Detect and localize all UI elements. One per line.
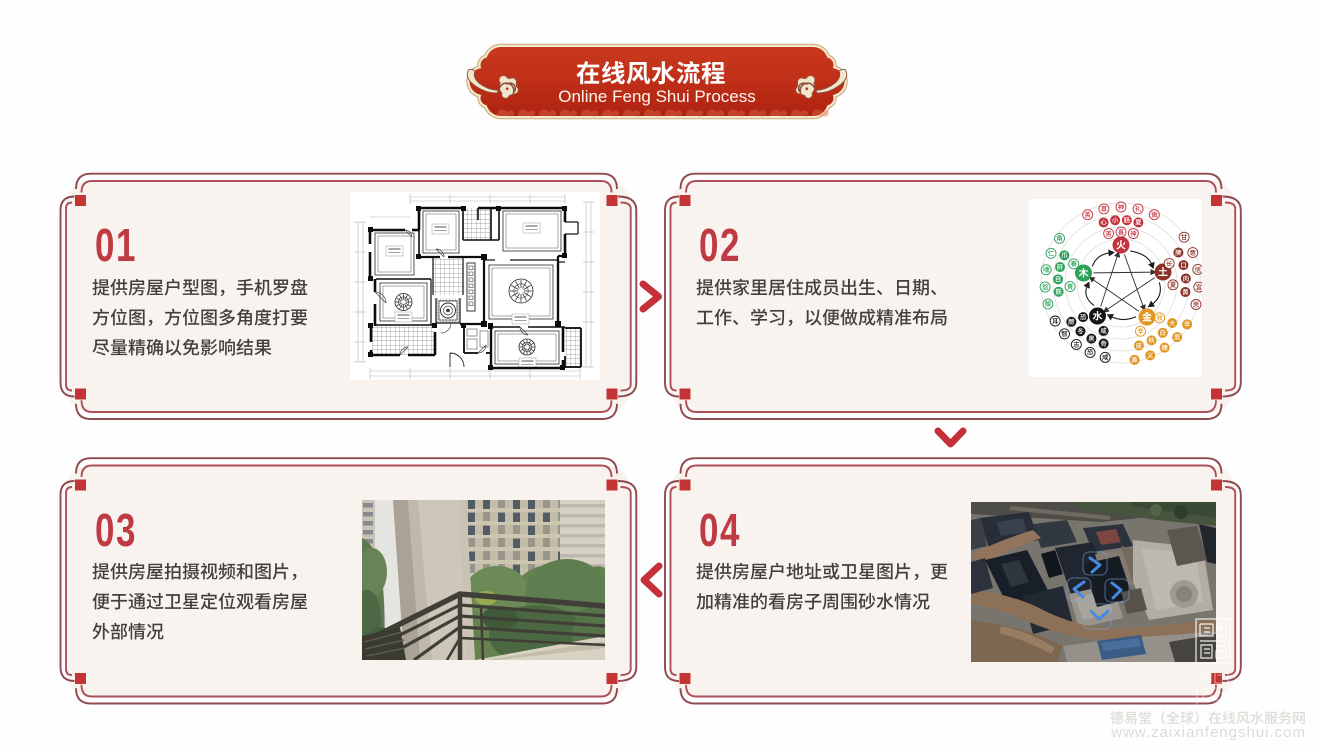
svg-text:膀: 膀 (1068, 316, 1075, 326)
svg-text:苦: 苦 (1084, 209, 1091, 219)
svg-text:筋: 筋 (1055, 286, 1062, 296)
svg-text:脾: 脾 (1175, 247, 1182, 257)
svg-text:志: 志 (1073, 339, 1080, 349)
svg-text:收: 收 (1156, 312, 1163, 322)
svg-text:鼻: 鼻 (1131, 354, 1138, 364)
svg-text:心: 心 (1100, 217, 1107, 227)
svg-text:咸: 咸 (1102, 352, 1109, 362)
svg-text:角: 角 (1056, 233, 1063, 243)
svg-text:小: 小 (1112, 215, 1119, 225)
svg-text:意: 意 (1190, 247, 1197, 257)
svg-text:目: 目 (1055, 274, 1062, 284)
svg-text:智: 智 (1061, 328, 1068, 338)
svg-text:春: 春 (1070, 258, 1077, 268)
svg-text:喜: 喜 (1101, 203, 1108, 213)
svg-text:夏: 夏 (1135, 217, 1142, 227)
svg-text:辛: 辛 (1184, 319, 1191, 329)
svg-text:咸: 咸 (1100, 325, 1107, 335)
svg-text:木: 木 (1079, 265, 1089, 280)
svg-text:怒: 怒 (1042, 281, 1049, 291)
svg-text:喜: 喜 (1118, 226, 1125, 236)
svg-text:苦: 苦 (1105, 228, 1112, 238)
svg-text:青: 青 (1067, 281, 1074, 291)
svg-text:恐: 恐 (1080, 311, 1087, 321)
svg-text:水: 水 (1093, 308, 1103, 323)
svg-text:金: 金 (1142, 309, 1152, 324)
svg-text:酸: 酸 (1045, 298, 1052, 308)
svg-text:夏: 夏 (1170, 279, 1177, 289)
svg-text:大: 大 (1169, 317, 1176, 327)
svg-text:微: 微 (1151, 209, 1158, 219)
svg-text:肝: 肝 (1057, 261, 1064, 271)
svg-text:皮: 皮 (1136, 340, 1143, 350)
svg-text:神: 神 (1130, 228, 1137, 238)
svg-text:神: 神 (1118, 201, 1125, 211)
svg-text:肉: 肉 (1183, 273, 1190, 283)
svg-text:骨: 骨 (1100, 338, 1107, 348)
svg-text:礼: 礼 (1135, 203, 1142, 213)
svg-text:宫: 宫 (1196, 281, 1203, 291)
svg-text:仁: 仁 (1048, 248, 1055, 258)
svg-text:肠: 肠 (1124, 215, 1131, 225)
svg-text:甘: 甘 (1181, 231, 1188, 241)
svg-text:耳: 耳 (1052, 315, 1059, 325)
svg-text:信: 信 (1195, 264, 1202, 274)
svg-text:爪: 爪 (1061, 250, 1068, 260)
svg-text:魄: 魄 (1161, 342, 1168, 352)
svg-text:冬: 冬 (1077, 326, 1084, 336)
svg-text:秋: 秋 (1148, 335, 1155, 345)
svg-text:长: 长 (1166, 258, 1173, 268)
svg-text:辛: 辛 (1137, 326, 1144, 336)
svg-text:悲: 悲 (1174, 331, 1181, 341)
svg-text:白: 白 (1160, 327, 1167, 337)
svg-text:义: 义 (1147, 350, 1154, 360)
svg-text:思: 思 (1193, 299, 1200, 309)
svg-text:火: 火 (1116, 237, 1126, 252)
svg-text:恐: 恐 (1087, 347, 1094, 357)
svg-text:黄: 黄 (1182, 286, 1189, 296)
svg-text:魂: 魂 (1043, 264, 1050, 274)
svg-text:口: 口 (1180, 259, 1187, 269)
svg-text:黑: 黑 (1088, 333, 1095, 343)
